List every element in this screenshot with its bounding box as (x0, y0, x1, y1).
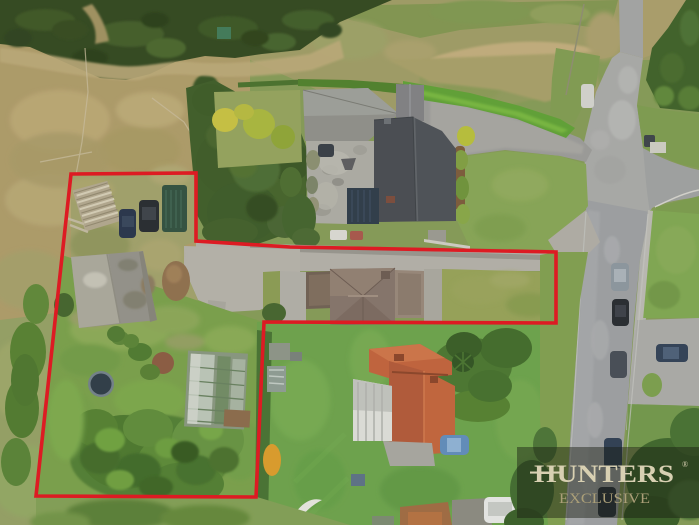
svg-text:HUNTERS: HUNTERS (534, 461, 674, 488)
svg-text:EXCLUSIVE: EXCLUSIVE (559, 491, 650, 507)
svg-text:®: ® (682, 460, 688, 469)
